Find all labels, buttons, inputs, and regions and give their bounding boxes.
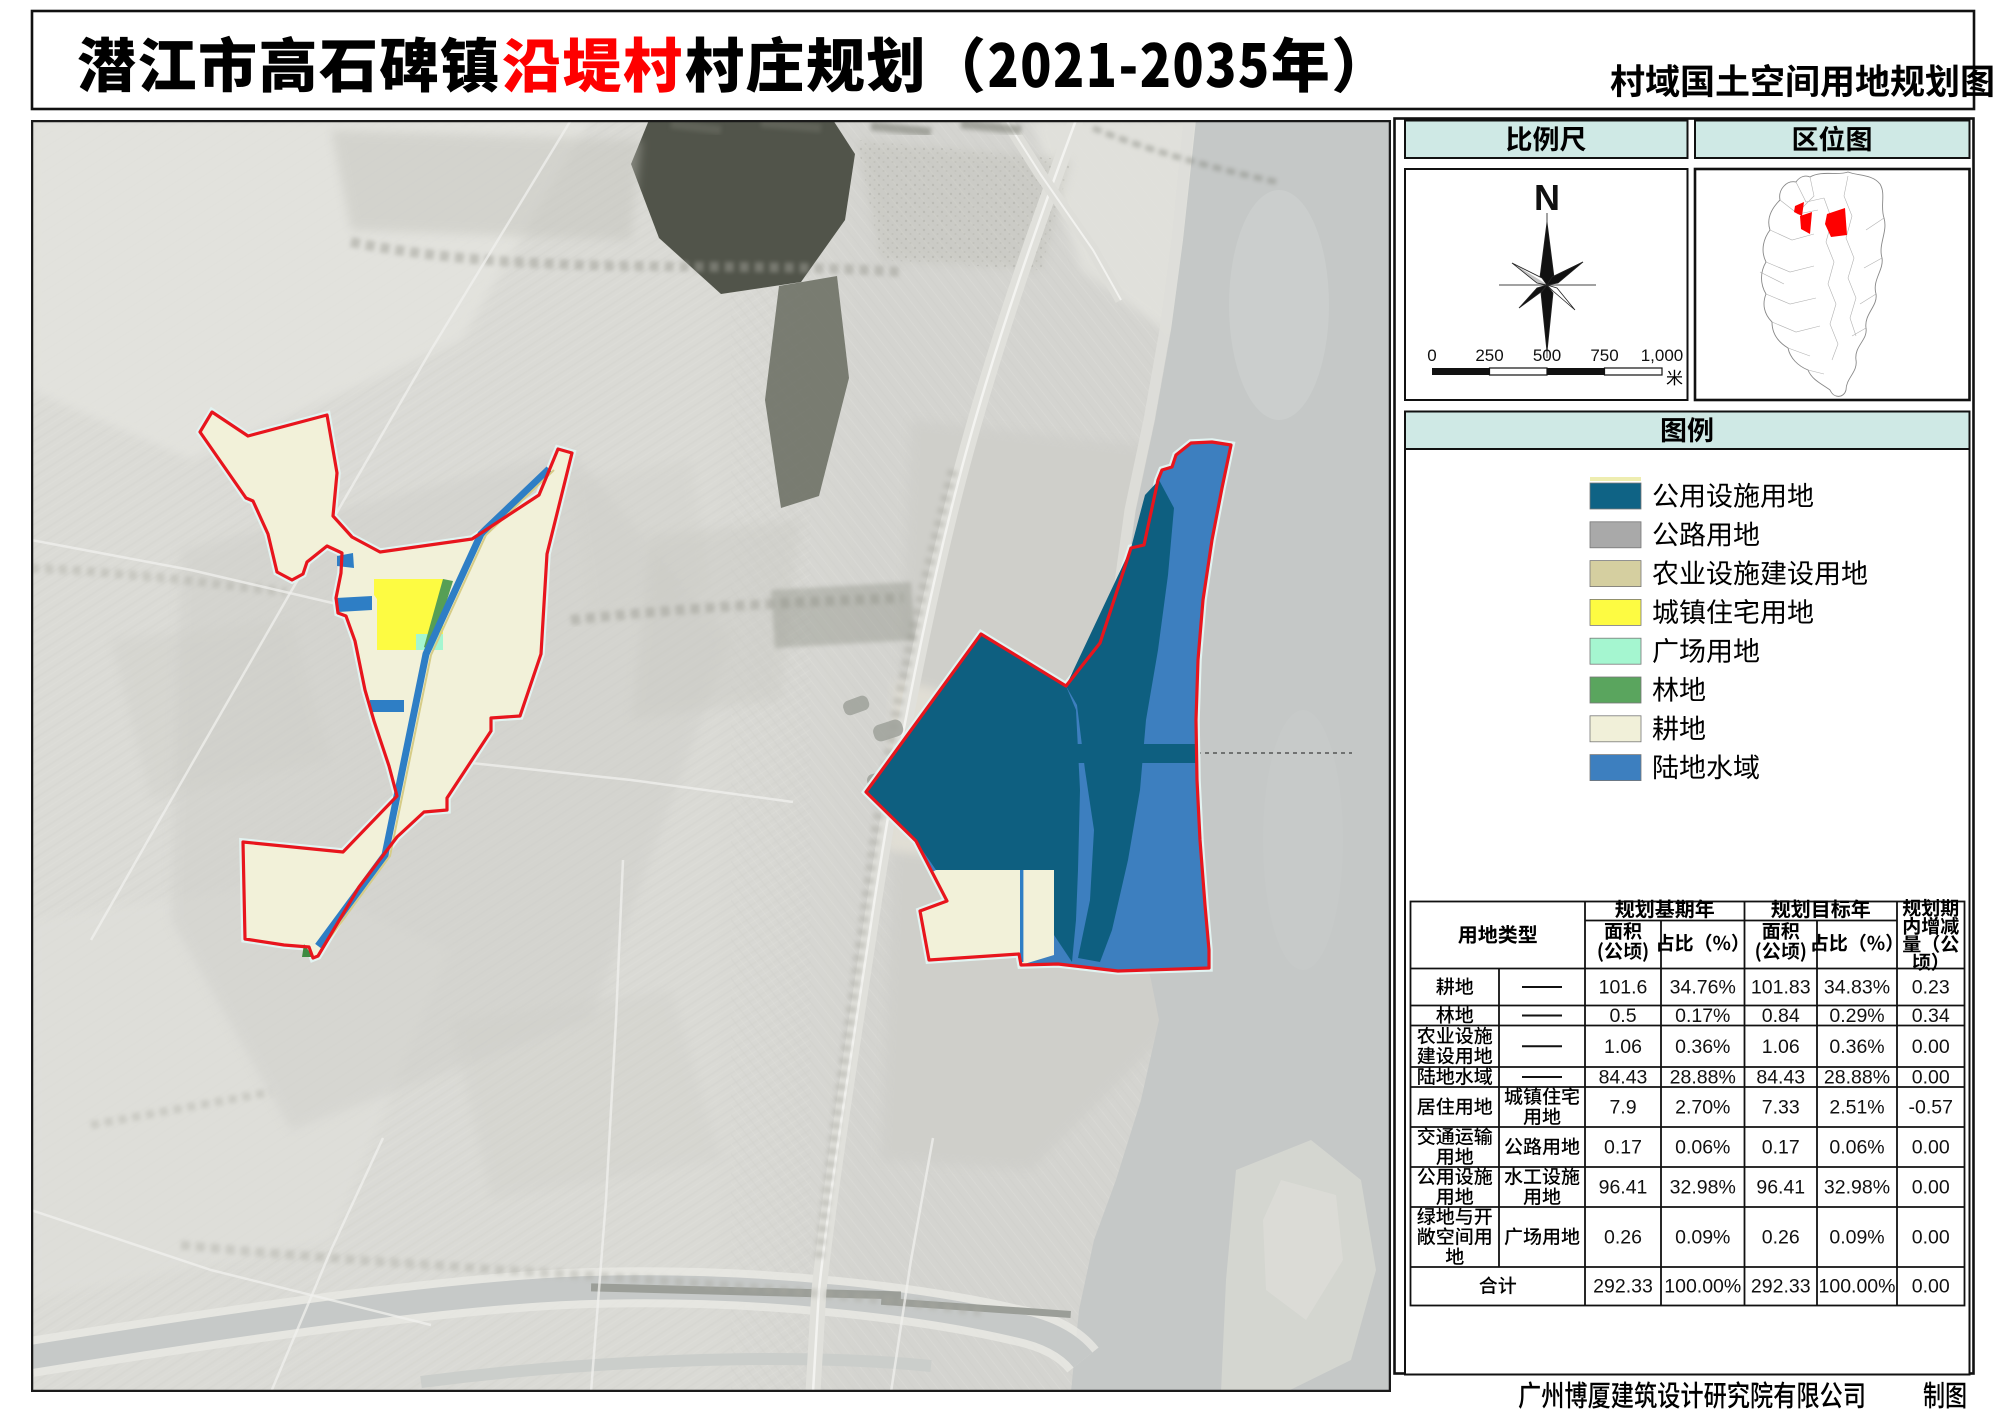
svg-text:0.5: 0.5: [1609, 1005, 1636, 1027]
svg-text:0.00: 0.00: [1912, 1036, 1950, 1058]
svg-text:N: N: [1534, 177, 1560, 218]
svg-text:1,000: 1,000: [1641, 346, 1684, 365]
svg-text:28.88%: 28.88%: [1824, 1067, 1890, 1089]
svg-text:0.36%: 0.36%: [1829, 1036, 1884, 1058]
svg-text:7.9: 7.9: [1609, 1097, 1636, 1119]
svg-text:84.43: 84.43: [1599, 1067, 1648, 1089]
svg-text:0.23: 0.23: [1912, 977, 1950, 999]
svg-text:250: 250: [1475, 346, 1503, 365]
svg-text:101.83: 101.83: [1751, 977, 1811, 999]
svg-text:34.83%: 34.83%: [1824, 977, 1890, 999]
svg-text:0: 0: [1427, 346, 1436, 365]
svg-text:0.36%: 0.36%: [1675, 1036, 1730, 1058]
svg-text:1.06: 1.06: [1762, 1036, 1800, 1058]
svg-text:292.33: 292.33: [1751, 1276, 1811, 1298]
svg-text:100.00%: 100.00%: [1819, 1276, 1896, 1298]
svg-text:7.33: 7.33: [1762, 1097, 1800, 1119]
svg-text:0.00: 0.00: [1912, 1137, 1950, 1159]
svg-text:0.26: 0.26: [1762, 1227, 1800, 1249]
svg-text:0.00: 0.00: [1912, 1177, 1950, 1199]
svg-text:0.00: 0.00: [1912, 1067, 1950, 1089]
svg-text:0.17: 0.17: [1604, 1137, 1642, 1159]
svg-text:292.33: 292.33: [1593, 1276, 1653, 1298]
svg-text:2.70%: 2.70%: [1675, 1097, 1730, 1119]
svg-text:96.41: 96.41: [1599, 1177, 1648, 1199]
svg-text:0.06%: 0.06%: [1675, 1137, 1730, 1159]
svg-text:2.51%: 2.51%: [1829, 1097, 1884, 1119]
svg-text:34.76%: 34.76%: [1670, 977, 1736, 999]
svg-text:32.98%: 32.98%: [1670, 1177, 1736, 1199]
svg-text:0.09%: 0.09%: [1829, 1227, 1884, 1249]
svg-text:101.6: 101.6: [1599, 977, 1648, 999]
svg-text:32.98%: 32.98%: [1824, 1177, 1890, 1199]
svg-text:500: 500: [1533, 346, 1561, 365]
svg-text:0.84: 0.84: [1762, 1005, 1800, 1027]
svg-text:0.00: 0.00: [1912, 1227, 1950, 1249]
svg-text:0.17%: 0.17%: [1675, 1005, 1730, 1027]
svg-text:0.00: 0.00: [1912, 1276, 1950, 1298]
svg-text:100.00%: 100.00%: [1664, 1276, 1741, 1298]
svg-text:0.29%: 0.29%: [1829, 1005, 1884, 1027]
svg-text:96.41: 96.41: [1756, 1177, 1805, 1199]
svg-text:0.34: 0.34: [1912, 1005, 1950, 1027]
svg-text:28.88%: 28.88%: [1670, 1067, 1736, 1089]
svg-text:0.26: 0.26: [1604, 1227, 1642, 1249]
svg-text:0.09%: 0.09%: [1675, 1227, 1730, 1249]
svg-text:84.43: 84.43: [1756, 1067, 1805, 1089]
svg-text:750: 750: [1590, 346, 1618, 365]
svg-text:1.06: 1.06: [1604, 1036, 1642, 1058]
svg-text:0.06%: 0.06%: [1829, 1137, 1884, 1159]
svg-text:0.17: 0.17: [1762, 1137, 1800, 1159]
svg-text:-0.57: -0.57: [1909, 1097, 1953, 1119]
